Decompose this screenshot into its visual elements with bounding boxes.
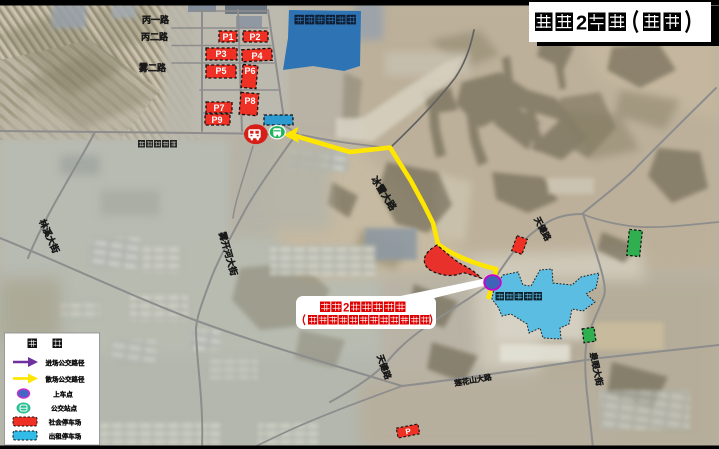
svg-text:社会停车场: 社会停车场 [49,418,82,427]
svg-text:上车点: 上车点 [53,390,73,399]
svg-text:P5: P5 [215,66,226,76]
svg-text:P9: P9 [211,115,222,125]
svg-text:公交站点: 公交站点 [51,404,78,413]
svg-text:散场公交路径: 散场公交路径 [46,375,86,384]
svg-text:P7: P7 [213,103,224,113]
svg-text:P8: P8 [244,96,255,106]
svg-text:进场公交路径: 进场公交路径 [46,358,86,367]
svg-text:2: 2 [343,303,349,315]
svg-text:丙二路: 丙二路 [141,31,169,42]
svg-text:P4: P4 [251,51,262,61]
svg-text:P1: P1 [222,32,233,42]
svg-text:2: 2 [576,13,587,35]
svg-text:P6: P6 [244,66,255,76]
svg-text:出租停车场: 出租停车场 [49,432,82,441]
svg-text:丙一路: 丙一路 [142,14,170,25]
svg-text:雾二路: 雾二路 [138,62,167,73]
svg-text:P2: P2 [249,32,260,42]
svg-text:P3: P3 [215,49,226,59]
